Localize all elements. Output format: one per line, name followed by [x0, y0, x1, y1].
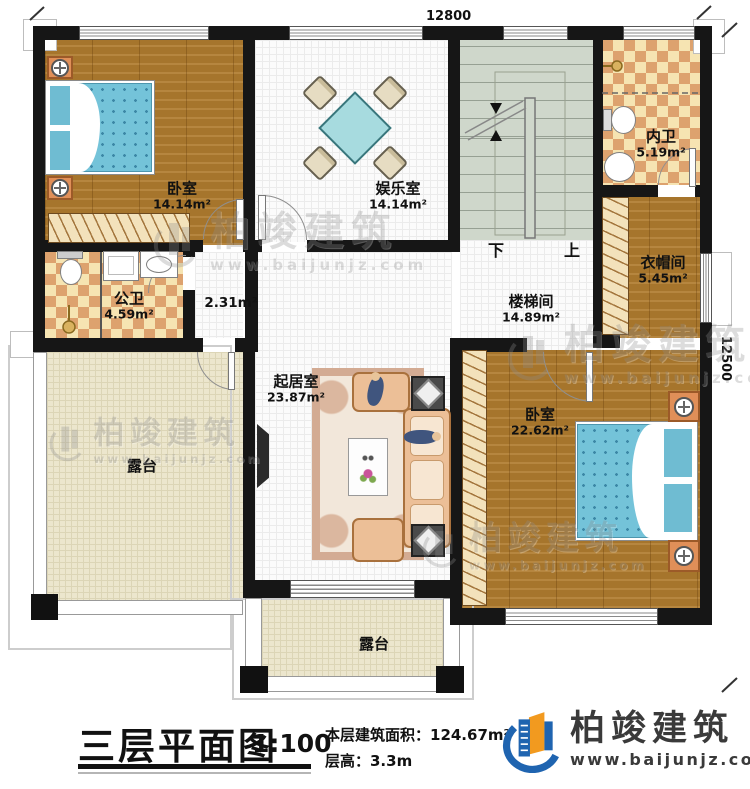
wardrobe — [602, 197, 629, 335]
door-leaf — [586, 352, 593, 402]
wall — [448, 26, 460, 252]
room-label-terrace-bottom: 露台 — [359, 637, 389, 653]
terrace-railing — [245, 676, 460, 692]
wall — [602, 185, 658, 197]
plan-scale: 1:100 — [252, 729, 332, 758]
window — [79, 26, 209, 40]
sink-icon — [146, 256, 172, 273]
room-label-cloakroom: 衣帽间5.45m² — [638, 256, 687, 285]
bed-pillow — [663, 428, 693, 478]
person-head — [371, 372, 380, 381]
room-label-inner-bath: 内卫5.19m² — [636, 130, 685, 159]
room-label-recreation: 娱乐室14.14m² — [369, 182, 427, 211]
sink-counter — [140, 251, 178, 278]
door-leaf — [228, 352, 235, 390]
door-leaf — [258, 195, 266, 240]
toilet-tank — [57, 251, 83, 259]
room-label-hallway: 2.31m² — [204, 296, 257, 310]
dimension-top: 12800 — [426, 9, 471, 24]
terrace-railing — [33, 600, 243, 615]
wall — [243, 26, 255, 252]
room-label-living: 起居室23.87m² — [267, 375, 325, 404]
wall — [243, 580, 290, 598]
brand-logo: 柏竣建筑www.baijunjz.com — [500, 707, 750, 773]
wall — [33, 338, 203, 352]
coffee-table — [348, 438, 388, 496]
window — [290, 580, 415, 598]
terrace-post — [31, 594, 58, 620]
washing-machine-icon — [103, 251, 139, 281]
washer-door — [108, 256, 134, 275]
wall — [658, 608, 712, 625]
terrace-post — [436, 666, 464, 693]
window — [503, 26, 568, 40]
dimension-right: 12500 — [718, 336, 733, 381]
wall — [450, 608, 505, 625]
table-lamp-icon — [413, 379, 443, 409]
nightstand — [668, 540, 700, 572]
lamp-icon — [51, 59, 69, 77]
door-arc — [262, 195, 307, 240]
window — [623, 26, 695, 40]
window — [289, 26, 423, 40]
toilet-icon — [60, 259, 82, 285]
floor-height-text: 层高：3.3m — [325, 748, 510, 774]
toilet-icon — [611, 106, 636, 134]
lamp-icon — [51, 179, 69, 197]
wall — [183, 290, 195, 338]
stairwell-stairs — [460, 40, 593, 240]
terrace-railing — [33, 352, 47, 614]
wardrobe — [48, 213, 190, 243]
room-label-bedroom2: 卧室22.62m² — [511, 408, 569, 437]
nightstand — [47, 56, 73, 79]
bed-pillow — [49, 130, 71, 171]
floor-area-text: 本层建筑面积：124.67m² — [325, 722, 510, 748]
room-label-public-bath: 公卫4.59m² — [104, 292, 153, 321]
wall — [307, 240, 460, 252]
nightstand — [668, 391, 700, 422]
brand-logo-icon — [500, 707, 562, 773]
wall — [235, 338, 258, 352]
stair-down-label: 下 — [488, 237, 504, 261]
bed-pillow — [49, 85, 71, 126]
floor-plan-page: 卧室14.14m² 娱乐室14.14m² 内卫5.19m² 衣帽间5.45m² … — [0, 0, 750, 789]
door-leaf — [689, 148, 696, 187]
side-table — [411, 376, 445, 411]
wall — [243, 352, 255, 598]
window — [700, 253, 712, 323]
bed-pillow — [663, 483, 693, 533]
lamp-icon — [674, 397, 694, 417]
sink-icon — [604, 152, 635, 182]
room-label-stairwell: 楼梯间14.89m² — [502, 295, 560, 324]
person-head — [432, 432, 441, 441]
armchair — [352, 518, 404, 562]
wall — [695, 185, 702, 197]
sofa-cushion — [410, 460, 444, 500]
door-leaf — [236, 199, 244, 240]
terrace-post — [240, 666, 268, 693]
table-lamp-icon — [413, 526, 443, 556]
room-label-bedroom1: 卧室14.14m² — [153, 182, 211, 211]
stair-up-label: 上 — [564, 237, 580, 261]
side-table — [411, 524, 445, 557]
plan-title: 三层平面图 — [78, 716, 278, 770]
wall — [33, 26, 45, 352]
title-underline-thin — [78, 772, 311, 774]
wall — [415, 580, 462, 598]
plan-info: 本层建筑面积：124.67m² 层高：3.3m — [325, 722, 510, 775]
lamp-icon — [674, 546, 694, 566]
nightstand — [47, 176, 73, 200]
wardrobe — [462, 350, 487, 606]
tv-icon — [257, 424, 269, 488]
title-underline — [78, 764, 311, 769]
wall — [593, 335, 620, 348]
window — [505, 608, 658, 625]
room-label-terrace-left: 露台 — [127, 459, 157, 475]
